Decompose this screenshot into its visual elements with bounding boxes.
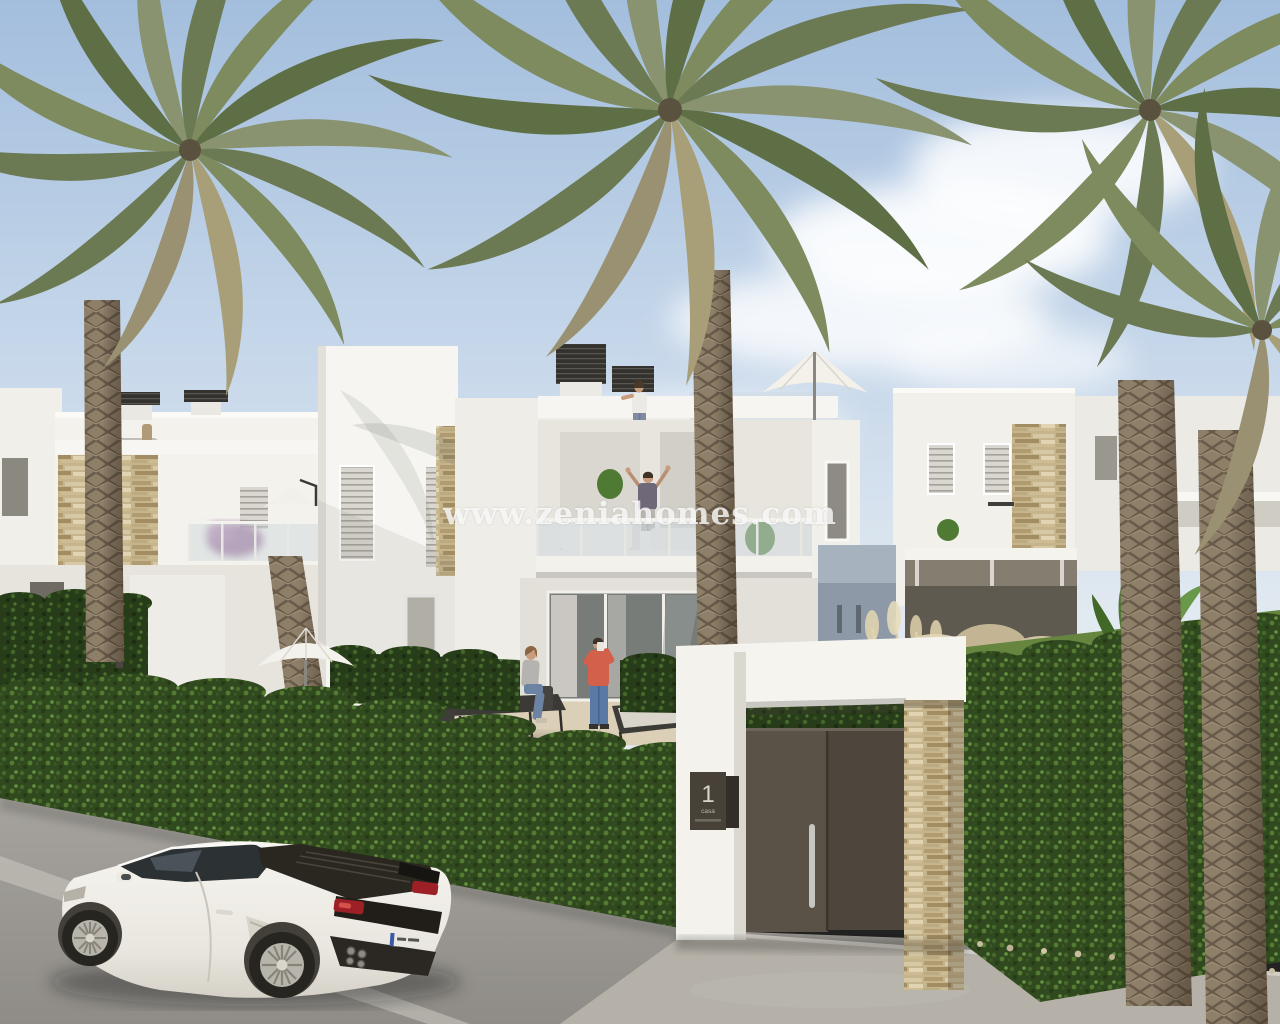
side-mirror [116,872,133,882]
gate-handle [809,824,815,908]
terrace-balustrade [536,518,838,581]
glass-balustrade [188,521,322,561]
rear-wheel [244,922,320,998]
front-wheel [58,902,122,966]
building-left [0,388,330,712]
license-plate [390,933,424,948]
blue-gray-wall [818,545,896,655]
gate-doors [746,728,906,932]
render-canvas: 1 casa [0,0,1280,1024]
gate-label: casa [701,808,715,815]
gate-number: 1 [701,781,714,808]
gate-number-plaque: 1 casa [690,772,739,830]
